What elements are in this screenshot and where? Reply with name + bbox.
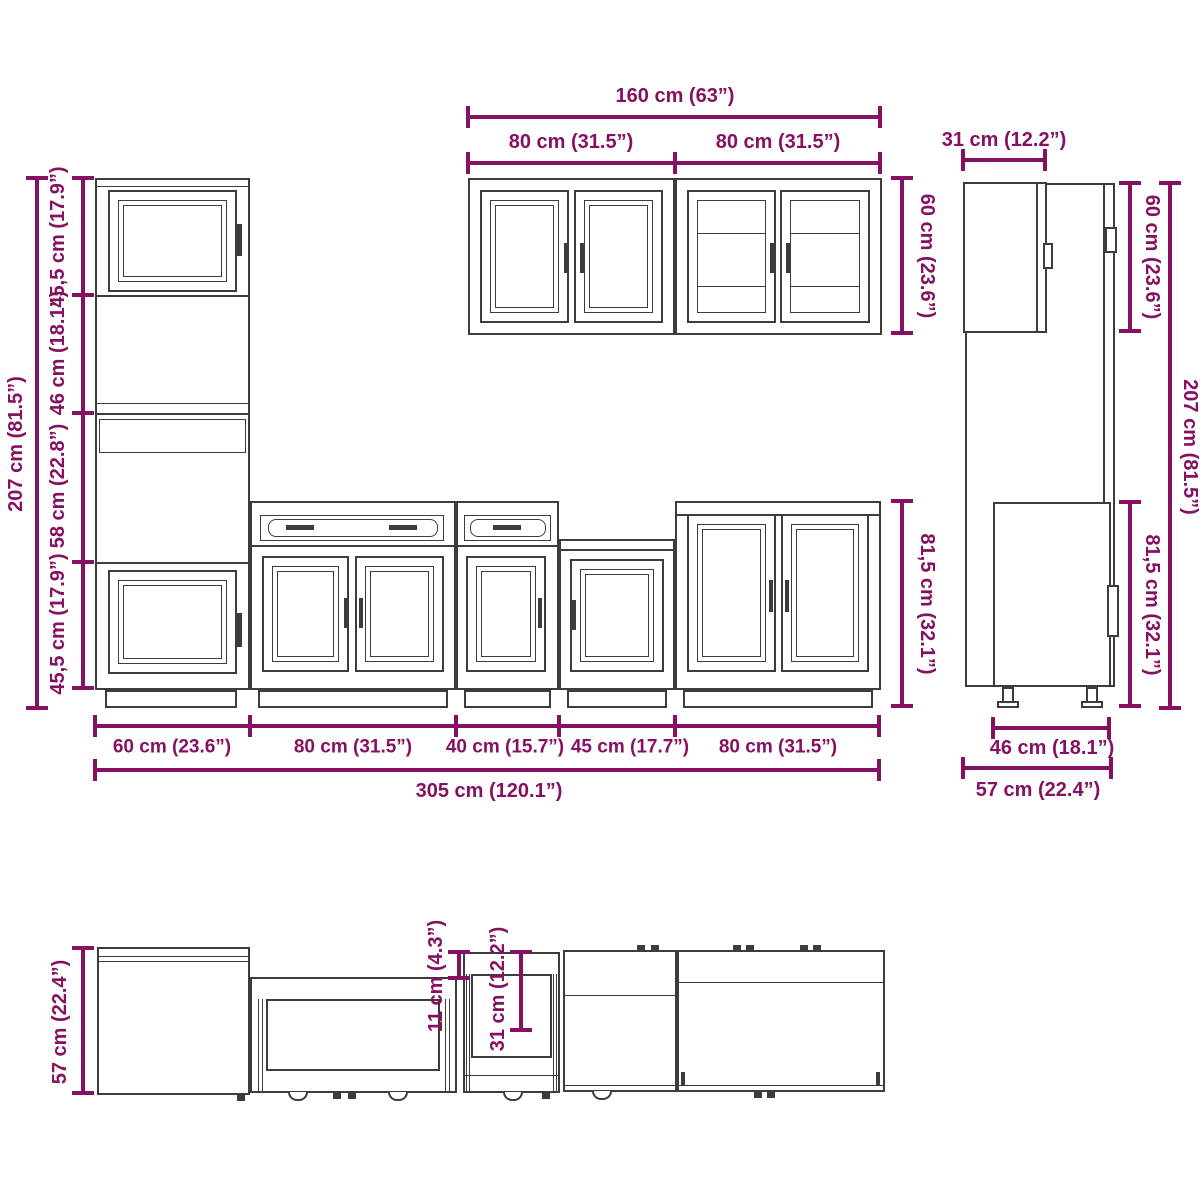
foot-mark [503, 1092, 523, 1101]
cabinet-line [677, 982, 885, 983]
glass-pane [697, 200, 766, 313]
shelf-line [791, 286, 859, 287]
cabinet-line [1036, 182, 1038, 333]
dimension-cap [466, 106, 470, 128]
base-cabinet-side [993, 502, 1111, 687]
dimension-cap [961, 149, 965, 171]
dimension-cap [878, 152, 882, 174]
dim-label-unit-40: 40 cm (15.7”) [446, 738, 564, 757]
door-handle [785, 580, 789, 612]
dimension-tick [673, 715, 677, 737]
plinth [683, 690, 873, 708]
dimension-tick [557, 715, 561, 737]
dim-label-total-width: 305 cm (120.1”) [416, 781, 563, 801]
cabinet-line [95, 295, 250, 297]
door-handle [1105, 227, 1117, 253]
dim-label-unit-60: 60 cm (23.6”) [113, 738, 231, 757]
door-handle [1107, 585, 1119, 637]
dimension-cap [1119, 704, 1141, 708]
drawer-handle [389, 525, 417, 530]
drawer-handle [493, 525, 521, 530]
dimension-cap [93, 715, 97, 737]
hinge-mark [746, 945, 754, 951]
top-unit-60 [97, 947, 250, 1095]
plinth [464, 690, 551, 708]
dimension-cap [1043, 149, 1047, 171]
cabinet-line [97, 186, 248, 187]
dim-label-side-wall-height: 60 cm (23.6”) [1142, 195, 1162, 320]
dimension-line [35, 178, 39, 710]
plinth [258, 690, 448, 708]
door-handle [769, 580, 773, 612]
dim-label-side-base-depth: 46 cm (18.1”) [990, 738, 1115, 758]
door-handle [237, 613, 242, 647]
dimension-line [900, 501, 904, 708]
dim-label-base-height: 81,5 cm (32.1”) [917, 533, 937, 674]
corner-bracket [681, 1072, 685, 1086]
door-panel [481, 571, 531, 657]
foot-mark [542, 1092, 550, 1099]
dimension-line [81, 948, 85, 1095]
dimension-line [1168, 183, 1172, 710]
dimension-cap [891, 176, 913, 180]
dim-label-wall-right-width: 80 cm (31.5”) [716, 132, 841, 152]
dim-label-drawer-front-depth: 11 cm (4.3”) [426, 920, 446, 1032]
shelf-line [698, 286, 765, 287]
dimension-line [81, 178, 85, 690]
dimension-cap [1107, 717, 1111, 739]
cabinet-line [463, 1075, 560, 1076]
dimension-line [468, 115, 882, 119]
dimension-line [963, 158, 1047, 162]
dimension-tick [673, 152, 677, 174]
dimension-cap [510, 950, 532, 954]
dim-label-unit-45: 45 cm (17.7”) [571, 738, 689, 757]
cabinet-line [99, 956, 248, 957]
open-drawer-box [266, 999, 440, 1071]
cabinet-line [563, 1085, 677, 1086]
dimension-cap [877, 715, 881, 737]
drawer-rail [258, 999, 259, 1093]
dimension-line [519, 952, 523, 1030]
dimension-tick [72, 560, 94, 564]
top-unit-45 [563, 950, 677, 1092]
cabinet-line [456, 545, 559, 547]
drawer-rail [262, 999, 263, 1093]
dimension-cap [1119, 500, 1141, 504]
dimension-line [457, 952, 461, 978]
dimension-cap [448, 976, 470, 980]
door-handle [786, 243, 790, 273]
dimension-cap [891, 704, 913, 708]
hinge-mark [651, 945, 659, 951]
dimension-line [95, 768, 881, 772]
cabinet-line [95, 413, 250, 415]
dimension-cap [26, 176, 48, 180]
hinge-mark [813, 945, 821, 951]
door-handle [237, 224, 242, 256]
drawer-handle [286, 525, 314, 530]
door-panel [123, 585, 222, 659]
dimension-tick [72, 176, 94, 180]
hinge-mark [637, 945, 645, 951]
foot-mark [754, 1091, 762, 1098]
foot-mark [333, 1092, 341, 1099]
hinge-mark [800, 945, 808, 951]
dimension-line [963, 766, 1113, 770]
dim-label-wall-left-width: 80 cm (31.5”) [509, 132, 634, 152]
corner-bracket [876, 1072, 880, 1086]
leg-foot [1081, 701, 1103, 708]
dimension-line [1128, 183, 1132, 333]
wall-cabinet-side [963, 182, 1047, 333]
dim-label-section-3: 58 cm (22.8”) [48, 424, 68, 549]
shelf-line [97, 403, 248, 404]
dimension-tick [248, 715, 252, 737]
door-panel [702, 529, 761, 657]
dimension-cap [466, 152, 470, 174]
dimension-cap [1119, 329, 1141, 333]
foot-mark [767, 1091, 775, 1098]
dim-label-front-total-height: 207 cm (81.5”) [6, 376, 26, 512]
shelf-line [698, 233, 765, 234]
door-panel [277, 571, 334, 657]
door-panel [370, 571, 429, 657]
dim-label-side-total-depth: 57 cm (22.4”) [976, 780, 1101, 800]
dimension-cap [961, 757, 965, 779]
dimension-line [993, 726, 1111, 730]
dimension-cap [877, 759, 881, 781]
dim-label-side-base-height: 81,5 cm (32.1”) [1142, 534, 1162, 675]
cabinet-line [563, 995, 677, 996]
glass-pane [790, 200, 860, 313]
dimension-cap [1109, 757, 1113, 779]
foot-mark [288, 1092, 308, 1101]
top-unit-80 [677, 950, 885, 1092]
dim-label-wall-total-width: 160 cm (63”) [616, 86, 735, 106]
dimension-cap [891, 499, 913, 503]
cabinet-line [559, 549, 675, 551]
dim-label-side-total-height: 207 cm (81.5”) [1180, 379, 1200, 515]
dim-label-section-2: 46 cm (18.1”) [48, 291, 68, 416]
dimension-cap [72, 946, 94, 950]
door-handle [359, 598, 363, 628]
dimension-line [95, 724, 881, 728]
dimension-tick [72, 293, 94, 297]
dimension-line [900, 178, 904, 335]
foot-mark [592, 1091, 612, 1100]
plinth [105, 690, 237, 708]
door-panel [585, 574, 649, 657]
door-panel [123, 205, 222, 277]
foot-mark [388, 1092, 408, 1101]
dim-label-drawer-depth: 31 cm (12.2”) [488, 927, 508, 1052]
foot-mark [237, 1095, 245, 1101]
cabinet-line [95, 562, 250, 564]
dimension-cap [891, 331, 913, 335]
dimension-cap [1159, 706, 1181, 710]
dimension-tick [72, 411, 94, 415]
hinge-mark [733, 945, 741, 951]
oven-niche-strip [99, 419, 246, 453]
dimension-cap [72, 1091, 94, 1095]
dimension-cap [26, 706, 48, 710]
dimension-tick [454, 715, 458, 737]
foot-mark [348, 1092, 356, 1099]
dimension-cap [1119, 181, 1141, 185]
shelf-line [791, 233, 859, 234]
door-panel [589, 205, 648, 308]
dimension-cap [510, 1028, 532, 1032]
leg-foot [997, 701, 1019, 708]
cabinet-line [99, 961, 248, 962]
dim-label-side-wall-depth: 31 cm (12.2”) [942, 130, 1067, 150]
door-handle [564, 243, 568, 273]
door-handle [770, 243, 774, 273]
dimension-cap [991, 717, 995, 739]
dim-label-section-4: 45,5 cm (17.9”) [48, 553, 68, 694]
plinth [567, 690, 667, 708]
dim-label-wall-height: 60 cm (23.6”) [917, 194, 937, 319]
door-handle [580, 243, 584, 273]
kitchen-cabinet-dimension-diagram: 207 cm (81.5”) 45,5 cm (17.9”) 46 cm (18… [0, 0, 1200, 1200]
dim-label-unit-80a: 80 cm (31.5”) [294, 738, 412, 757]
cabinet-line [677, 1085, 885, 1086]
dim-label-top-depth: 57 cm (22.4”) [50, 960, 70, 1085]
cabinet-line [250, 545, 456, 547]
dim-label-section-1: 45,5 cm (17.9”) [48, 166, 68, 307]
door-panel [796, 529, 854, 657]
dimension-cap [1159, 181, 1181, 185]
dimension-cap [448, 950, 470, 954]
drawer-rail [449, 999, 450, 1093]
dimension-cap [93, 759, 97, 781]
door-handle [344, 598, 348, 628]
dimension-cap [878, 106, 882, 128]
door-panel [495, 205, 554, 308]
open-drawer-box [471, 974, 552, 1058]
dimension-tick [72, 686, 94, 690]
dim-label-unit-80b: 80 cm (31.5”) [719, 738, 837, 757]
dimension-line [1128, 502, 1132, 708]
door-handle [572, 600, 576, 630]
door-handle [1043, 243, 1053, 269]
door-handle [538, 598, 542, 628]
